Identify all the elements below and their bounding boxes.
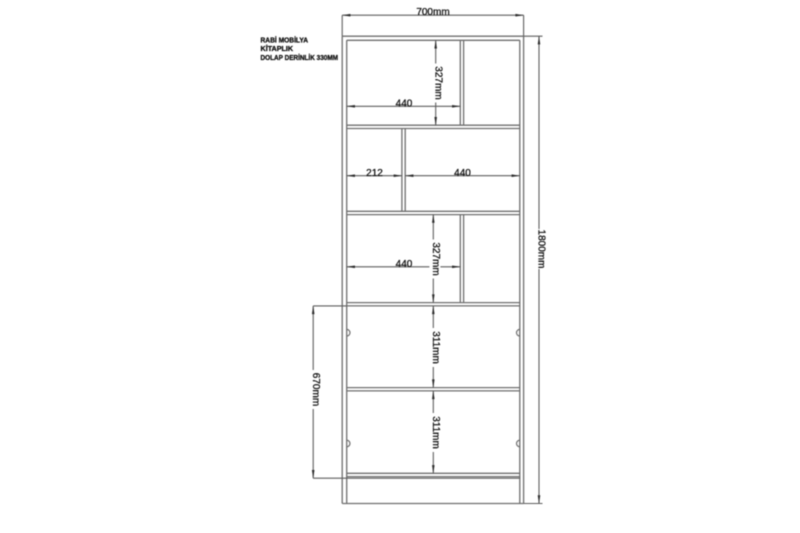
svg-text:311mm: 311mm — [430, 331, 441, 364]
svg-text:440: 440 — [396, 259, 413, 270]
svg-text:212: 212 — [366, 168, 383, 179]
svg-text:327mm: 327mm — [430, 242, 441, 275]
svg-text:700mm: 700mm — [416, 7, 449, 18]
svg-text:670mm: 670mm — [310, 373, 321, 406]
svg-text:311mm: 311mm — [430, 416, 441, 449]
svg-text:440: 440 — [396, 99, 413, 110]
svg-text:RABİ MOBİLYA: RABİ MOBİLYA — [261, 35, 309, 44]
svg-text:1800mm: 1800mm — [536, 230, 547, 269]
svg-text:327mm: 327mm — [432, 66, 443, 99]
svg-text:KİTAPLIK: KİTAPLIK — [261, 44, 294, 53]
svg-text:DOLAP DERİNLİK 330MM: DOLAP DERİNLİK 330MM — [261, 53, 339, 62]
svg-text:440: 440 — [454, 168, 471, 179]
